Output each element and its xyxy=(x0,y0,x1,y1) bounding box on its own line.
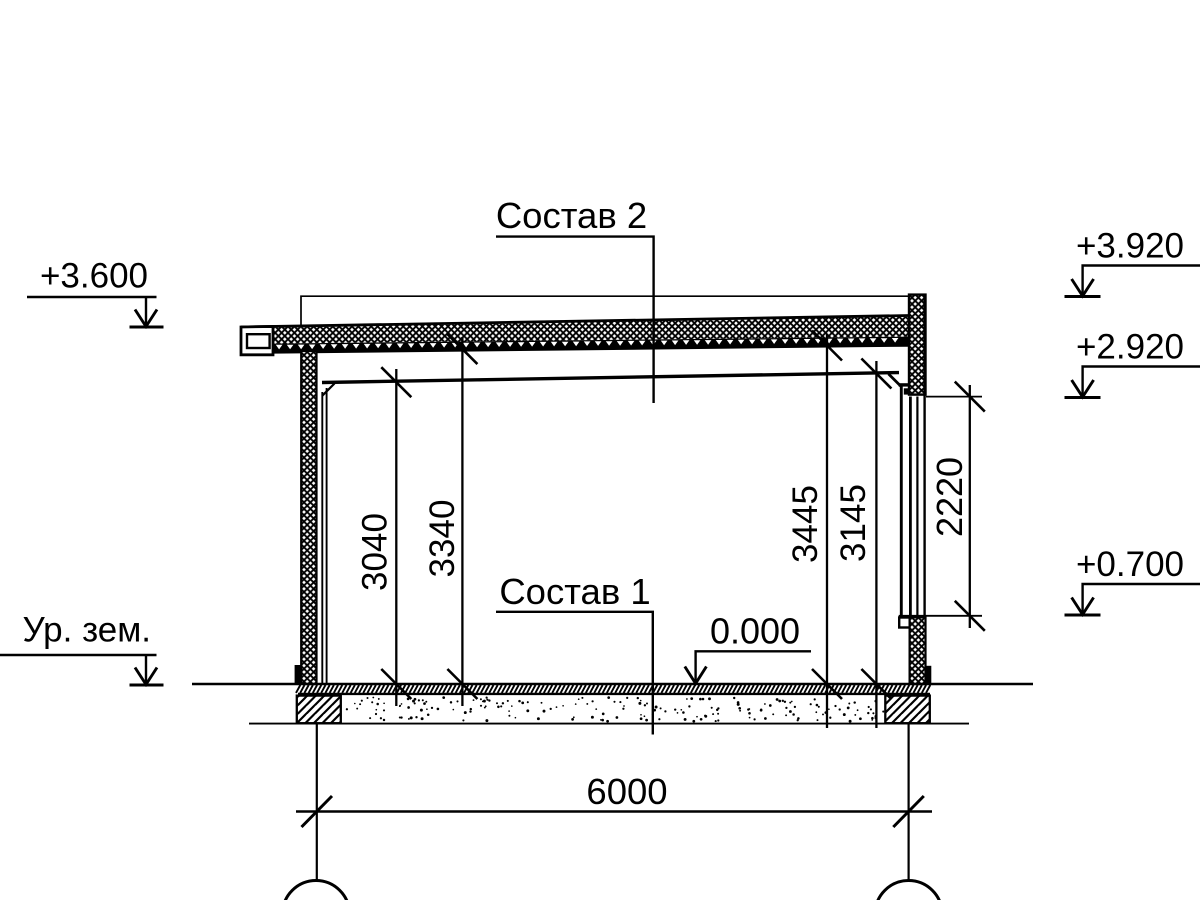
svg-text:Ур. зем.: Ур. зем. xyxy=(23,611,151,650)
svg-text:3145: 3145 xyxy=(834,484,873,562)
svg-text:+2.920: +2.920 xyxy=(1076,327,1184,366)
svg-text:+3.600: +3.600 xyxy=(40,257,148,296)
svg-text:3445: 3445 xyxy=(786,485,825,563)
svg-text:+3.920: +3.920 xyxy=(1076,226,1184,265)
svg-text:Состав 2: Состав 2 xyxy=(496,195,647,236)
svg-text:3040: 3040 xyxy=(356,513,395,591)
svg-text:Состав 1: Состав 1 xyxy=(499,571,650,612)
svg-text:3340: 3340 xyxy=(423,500,462,578)
svg-text:2220: 2220 xyxy=(929,457,970,537)
svg-text:0.000: 0.000 xyxy=(710,611,800,652)
svg-text:+0.700: +0.700 xyxy=(1076,545,1184,584)
svg-text:6000: 6000 xyxy=(586,771,667,812)
